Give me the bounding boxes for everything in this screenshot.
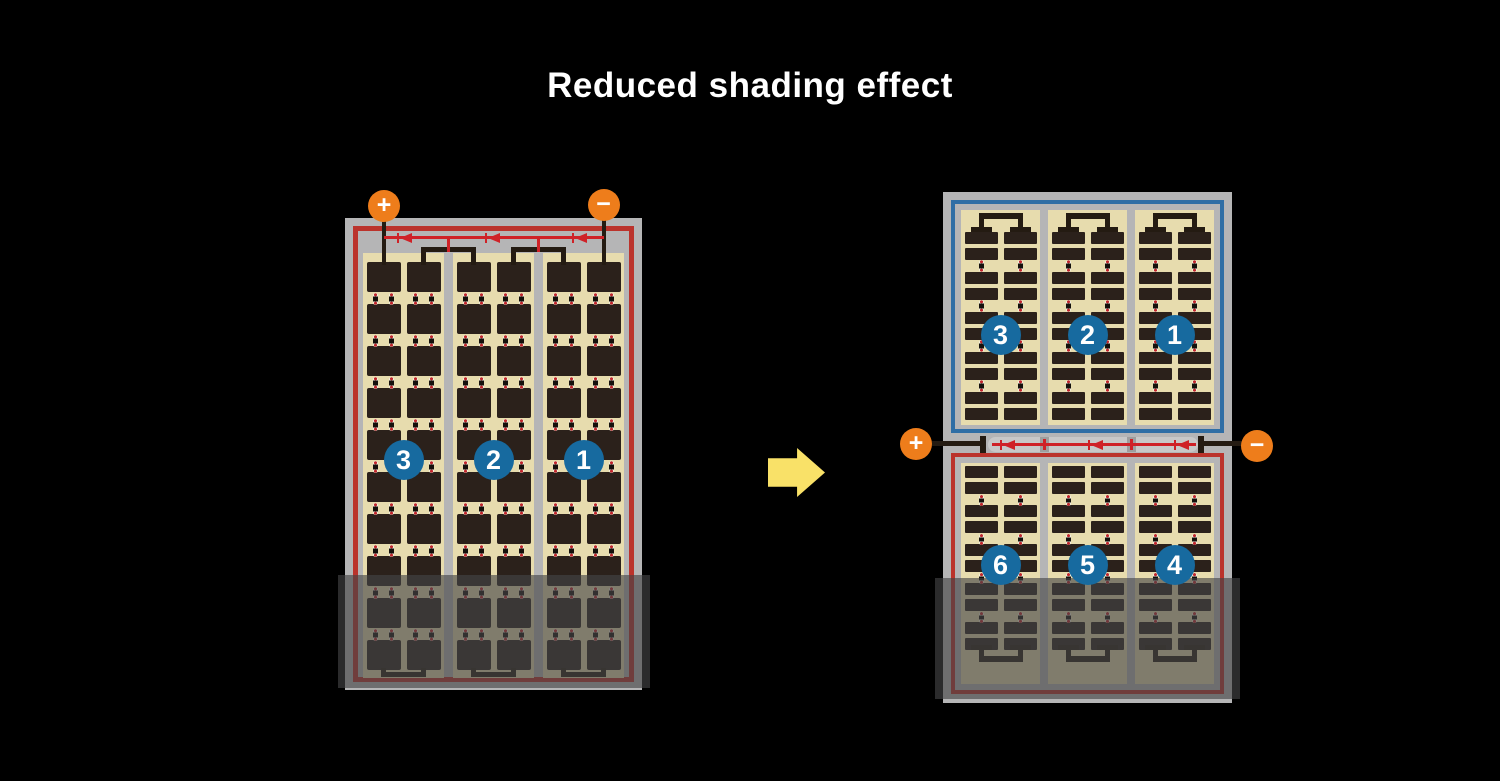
- solar-cell: [1139, 272, 1172, 284]
- cell-connector-icon: [569, 293, 574, 305]
- solar-cell: [1139, 521, 1172, 533]
- cell-connector-icon: [519, 461, 524, 473]
- solar-cell: [1052, 392, 1085, 404]
- cell-connector-icon: [519, 503, 524, 515]
- solar-cell: [367, 514, 401, 544]
- solar-cell: [1178, 392, 1211, 404]
- cell-connector-icon: [519, 293, 524, 305]
- solar-cell: [1052, 232, 1085, 244]
- string-number-badge: 3: [384, 440, 424, 480]
- solar-cell: [1178, 408, 1211, 420]
- solar-cell: [1052, 408, 1085, 420]
- bypass-diode-icon: [488, 233, 500, 243]
- solar-cell: [1178, 368, 1211, 380]
- cell-connector-icon: [429, 293, 434, 305]
- solar-cell: [367, 388, 401, 418]
- cell-connector-icon: [413, 335, 418, 347]
- solar-cell: [1004, 505, 1037, 517]
- cell-connector-icon: [979, 495, 984, 506]
- solar-cell: [1004, 272, 1037, 284]
- solar-cell: [1004, 466, 1037, 478]
- solar-cell: [1091, 248, 1124, 260]
- solar-cell: [407, 346, 441, 376]
- solar-cell: [965, 505, 998, 517]
- cell-connector-icon: [1192, 300, 1197, 312]
- string-number-badge: 4: [1155, 545, 1195, 585]
- diagram-title: Reduced shading effect: [0, 66, 1500, 106]
- solar-cell: [965, 408, 998, 420]
- cell-connector-icon: [373, 419, 378, 431]
- solar-cell: [497, 304, 531, 334]
- solar-cell: [1091, 368, 1124, 380]
- cell-connector-icon: [463, 377, 468, 389]
- solar-cell: [497, 514, 531, 544]
- cell-connector-icon: [519, 419, 524, 431]
- solar-cell: [1091, 505, 1124, 517]
- busbar: [561, 247, 566, 265]
- minus-terminal: −: [588, 189, 620, 221]
- plus-terminal: +: [900, 428, 932, 460]
- solar-cell: [1139, 288, 1172, 300]
- solar-cell: [965, 482, 998, 494]
- solar-cell: [1052, 248, 1085, 260]
- solar-cell: [1052, 368, 1085, 380]
- cell-connector-icon: [463, 461, 468, 473]
- cell-connector-icon: [429, 545, 434, 557]
- cell-connector-icon: [1018, 495, 1023, 506]
- cell-connector-icon: [553, 545, 558, 557]
- cell-connector-icon: [593, 377, 598, 389]
- cell-connector-icon: [519, 545, 524, 557]
- solar-cell: [965, 521, 998, 533]
- solar-cell: [1178, 232, 1211, 244]
- solar-cell: [1004, 521, 1037, 533]
- cell-connector-icon: [413, 377, 418, 389]
- solar-cell: [1091, 466, 1124, 478]
- cell-connector-icon: [373, 335, 378, 347]
- cell-connector-icon: [593, 335, 598, 347]
- cell-connector-icon: [553, 377, 558, 389]
- cell-connector-icon: [609, 293, 614, 305]
- cell-connector-icon: [569, 335, 574, 347]
- cell-connector-icon: [569, 419, 574, 431]
- solar-cell: [367, 346, 401, 376]
- shading-overlay: [338, 575, 650, 688]
- cell-connector-icon: [479, 545, 484, 557]
- solar-cell: [965, 272, 998, 284]
- cell-connector-icon: [413, 419, 418, 431]
- busbar: [1155, 213, 1194, 219]
- solar-cell: [1139, 352, 1172, 364]
- cell-connector-icon: [979, 300, 984, 312]
- cell-connector-icon: [1105, 260, 1110, 272]
- solar-cell: [407, 304, 441, 334]
- solar-cell: [1139, 505, 1172, 517]
- cell-connector-icon: [413, 293, 418, 305]
- cell-connector-icon: [1153, 260, 1158, 272]
- solar-cell: [1004, 288, 1037, 300]
- cell-connector-icon: [463, 335, 468, 347]
- cell-connector-icon: [1066, 380, 1071, 392]
- cell-connector-icon: [503, 335, 508, 347]
- solar-cell: [965, 466, 998, 478]
- solar-cell: [1091, 272, 1124, 284]
- minus-terminal: −: [1241, 430, 1273, 462]
- busbar: [1068, 213, 1107, 219]
- cell-connector-icon: [553, 461, 558, 473]
- cell-connector-icon: [1153, 300, 1158, 312]
- reduced-shading-diagram: Reduced shading effect 321 321654 +−+−: [0, 0, 1500, 781]
- cell-connector-icon: [373, 461, 378, 473]
- solar-cell: [1139, 466, 1172, 478]
- cell-connector-icon: [479, 377, 484, 389]
- solar-cell: [407, 262, 441, 292]
- cell-connector-icon: [609, 377, 614, 389]
- cell-connector-icon: [463, 293, 468, 305]
- solar-cell: [547, 346, 581, 376]
- cell-connector-icon: [389, 293, 394, 305]
- bypass-diode-icon: [1177, 440, 1189, 450]
- cell-connector-icon: [389, 419, 394, 431]
- cell-connector-icon: [1105, 380, 1110, 392]
- cell-connector-icon: [519, 335, 524, 347]
- solar-cell: [1091, 232, 1124, 244]
- solar-cell: [497, 262, 531, 292]
- solar-cell: [1052, 288, 1085, 300]
- cell-connector-icon: [1066, 534, 1071, 545]
- cell-connector-icon: [1105, 300, 1110, 312]
- solar-cell: [1091, 392, 1124, 404]
- bypass-diode-icon: [1088, 440, 1091, 450]
- string-number-badge: 6: [981, 545, 1021, 585]
- solar-cell: [1052, 466, 1085, 478]
- cell-connector-icon: [479, 335, 484, 347]
- bypass-diode-icon: [1000, 440, 1003, 450]
- solar-cell: [587, 262, 621, 292]
- cell-connector-icon: [1018, 260, 1023, 272]
- string-number-badge: 2: [474, 440, 514, 480]
- cell-connector-icon: [1153, 380, 1158, 392]
- diode-wire: [447, 239, 450, 252]
- cell-connector-icon: [479, 503, 484, 515]
- solar-cell: [457, 514, 491, 544]
- cell-connector-icon: [1192, 534, 1197, 545]
- solar-cell: [1052, 482, 1085, 494]
- cell-connector-icon: [569, 503, 574, 515]
- diode-wire: [1043, 439, 1046, 450]
- cell-connector-icon: [389, 377, 394, 389]
- solar-cell: [1139, 248, 1172, 260]
- bypass-diode-icon: [1174, 440, 1177, 450]
- diode-wire: [537, 239, 540, 252]
- solar-cell: [457, 388, 491, 418]
- solar-cell: [587, 388, 621, 418]
- bypass-diode-icon: [400, 233, 412, 243]
- cell-connector-icon: [593, 503, 598, 515]
- solar-cell: [1139, 232, 1172, 244]
- cell-connector-icon: [413, 545, 418, 557]
- cell-connector-icon: [593, 419, 598, 431]
- cell-connector-icon: [979, 534, 984, 545]
- cell-connector-icon: [479, 419, 484, 431]
- terminal-wire: [932, 441, 984, 446]
- solar-cell: [587, 514, 621, 544]
- cell-connector-icon: [1066, 260, 1071, 272]
- solar-cell: [1139, 408, 1172, 420]
- cell-connector-icon: [1018, 300, 1023, 312]
- solar-cell: [1004, 408, 1037, 420]
- cell-connector-icon: [1105, 534, 1110, 545]
- string-number-badge: 1: [564, 440, 604, 480]
- cell-connector-icon: [1153, 495, 1158, 506]
- solar-cell: [1178, 505, 1211, 517]
- cell-connector-icon: [1192, 260, 1197, 272]
- solar-cell: [1178, 521, 1211, 533]
- cell-connector-icon: [553, 503, 558, 515]
- solar-cell: [965, 368, 998, 380]
- cell-connector-icon: [503, 377, 508, 389]
- cell-connector-icon: [429, 377, 434, 389]
- solar-cell: [1139, 392, 1172, 404]
- solar-cell: [1004, 482, 1037, 494]
- solar-cell: [497, 388, 531, 418]
- cell-connector-icon: [429, 335, 434, 347]
- cell-connector-icon: [979, 260, 984, 272]
- cell-connector-icon: [593, 293, 598, 305]
- cell-connector-icon: [389, 503, 394, 515]
- cell-connector-icon: [1153, 534, 1158, 545]
- string-number-badge: 2: [1068, 315, 1108, 355]
- busbar: [421, 247, 426, 265]
- solar-cell: [965, 392, 998, 404]
- solar-cell: [1052, 352, 1085, 364]
- cell-connector-icon: [553, 293, 558, 305]
- solar-cell: [1091, 521, 1124, 533]
- cell-connector-icon: [1018, 380, 1023, 392]
- solar-cell: [965, 232, 998, 244]
- bypass-diode-icon: [572, 233, 575, 243]
- solar-cell: [587, 346, 621, 376]
- solar-cell: [1178, 288, 1211, 300]
- cell-connector-icon: [1066, 300, 1071, 312]
- bypass-diode-icon: [1091, 440, 1103, 450]
- busbar: [471, 247, 476, 265]
- cell-connector-icon: [519, 377, 524, 389]
- solar-cell: [1052, 505, 1085, 517]
- solar-cell: [965, 352, 998, 364]
- solar-cell: [497, 346, 531, 376]
- solar-cell: [1178, 482, 1211, 494]
- cell-connector-icon: [609, 503, 614, 515]
- solar-cell: [1004, 232, 1037, 244]
- cell-connector-icon: [463, 503, 468, 515]
- solar-cell: [547, 514, 581, 544]
- cell-connector-icon: [609, 419, 614, 431]
- cell-connector-icon: [429, 461, 434, 473]
- junction-bar: [980, 436, 986, 453]
- cell-connector-icon: [413, 503, 418, 515]
- solar-cell: [1091, 352, 1124, 364]
- shading-overlay: [935, 578, 1240, 699]
- solar-cell: [1178, 272, 1211, 284]
- cell-connector-icon: [373, 293, 378, 305]
- cell-connector-icon: [479, 293, 484, 305]
- solar-cell: [1091, 482, 1124, 494]
- terminal-wire: [1204, 441, 1244, 446]
- solar-cell: [1178, 352, 1211, 364]
- solar-cell: [407, 514, 441, 544]
- cell-connector-icon: [1192, 380, 1197, 392]
- cell-connector-icon: [503, 419, 508, 431]
- bypass-diode-icon: [397, 233, 400, 243]
- cell-connector-icon: [609, 461, 614, 473]
- solar-cell: [1091, 408, 1124, 420]
- cell-connector-icon: [553, 335, 558, 347]
- solar-cell: [1004, 368, 1037, 380]
- cell-connector-icon: [1066, 495, 1071, 506]
- solar-cell: [965, 248, 998, 260]
- cell-connector-icon: [463, 545, 468, 557]
- string-number-badge: 5: [1068, 545, 1108, 585]
- solar-cell: [1004, 248, 1037, 260]
- busbar: [511, 247, 516, 265]
- solar-cell: [1004, 352, 1037, 364]
- cell-connector-icon: [569, 545, 574, 557]
- solar-cell: [367, 304, 401, 334]
- cell-connector-icon: [503, 503, 508, 515]
- solar-cell: [1052, 272, 1085, 284]
- bypass-diode-icon: [485, 233, 488, 243]
- plus-terminal: +: [368, 190, 400, 222]
- string-number-badge: 3: [981, 315, 1021, 355]
- solar-cell: [1004, 392, 1037, 404]
- cell-connector-icon: [429, 419, 434, 431]
- solar-cell: [457, 262, 491, 292]
- solar-cell: [965, 288, 998, 300]
- busbar: [981, 213, 1020, 219]
- solar-cell: [587, 304, 621, 334]
- bypass-diode-icon: [575, 233, 587, 243]
- transition-arrow-icon: [768, 448, 825, 497]
- cell-connector-icon: [593, 545, 598, 557]
- solar-cell: [1139, 482, 1172, 494]
- cell-connector-icon: [503, 293, 508, 305]
- cell-connector-icon: [609, 335, 614, 347]
- solar-cell: [547, 388, 581, 418]
- solar-cell: [547, 304, 581, 334]
- cell-connector-icon: [373, 545, 378, 557]
- cell-connector-icon: [609, 545, 614, 557]
- cell-connector-icon: [569, 377, 574, 389]
- cell-connector-icon: [389, 545, 394, 557]
- string-number-badge: 1: [1155, 315, 1195, 355]
- solar-cell: [457, 346, 491, 376]
- solar-cell: [457, 304, 491, 334]
- solar-cell: [547, 262, 581, 292]
- solar-cell: [367, 262, 401, 292]
- solar-cell: [407, 388, 441, 418]
- solar-cell: [1052, 521, 1085, 533]
- cell-connector-icon: [553, 419, 558, 431]
- solar-cell: [1139, 368, 1172, 380]
- cell-connector-icon: [373, 377, 378, 389]
- diode-wire: [1130, 439, 1133, 450]
- cell-connector-icon: [979, 380, 984, 392]
- cell-connector-icon: [503, 545, 508, 557]
- cell-connector-icon: [429, 503, 434, 515]
- cell-connector-icon: [373, 503, 378, 515]
- cell-connector-icon: [1192, 495, 1197, 506]
- cell-connector-icon: [389, 335, 394, 347]
- solar-cell: [1091, 288, 1124, 300]
- cell-connector-icon: [1018, 534, 1023, 545]
- solar-cell: [1178, 466, 1211, 478]
- bypass-diode-icon: [1003, 440, 1015, 450]
- cell-connector-icon: [1105, 495, 1110, 506]
- cell-connector-icon: [463, 419, 468, 431]
- solar-cell: [1178, 248, 1211, 260]
